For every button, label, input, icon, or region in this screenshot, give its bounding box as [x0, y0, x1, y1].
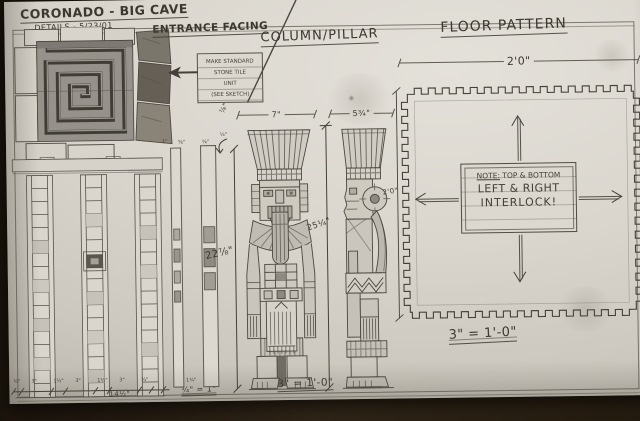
strip-dim-label: ⅝": [178, 139, 185, 145]
strip-dim-label: 1": [162, 139, 168, 145]
floor-note-line2: LEFT & RIGHT: [462, 181, 576, 197]
dim-label: 7": [272, 110, 282, 119]
pillar-side-drawing: [332, 123, 398, 392]
wall-dim-label: 3": [75, 378, 81, 384]
pillar-front-width-dim: 7": [238, 110, 316, 120]
wall-dim-label: 1½": [53, 378, 63, 384]
floor-note-prefix: NOTE:: [477, 171, 500, 180]
dim-label: 5¾": [353, 109, 371, 119]
photo-of-sketch: { "title_block": { "project": "CORONADO …: [0, 0, 640, 421]
pillar-scale-note: 3" = 1'-0": [277, 376, 333, 392]
floor-note-line3: INTERLOCK!: [462, 195, 576, 211]
floor-scale-note: 3" = 1'-0": [448, 325, 517, 345]
entrance-stone-drawing: [8, 26, 174, 162]
strip-dim-label: ⅝": [202, 139, 209, 145]
wall-dim-label: 1½": [97, 378, 107, 384]
wall-total-dim: 14½": [109, 390, 130, 399]
pillar-front-drawing: [240, 124, 322, 393]
pillar-side-width-dim: 5¾": [330, 109, 394, 119]
paper-speck: [348, 95, 354, 101]
wall-dim-label: 3": [119, 377, 125, 383]
slash-stroke: [240, 0, 305, 105]
sketch-paper: CORONADO - BIG CAVE DETAILS - 5/23/01 SH…: [4, 0, 640, 404]
wall-dim-label: 3": [31, 379, 37, 385]
wall-dim-label: ¾": [141, 377, 148, 383]
floor-note-line1: TOP & BOTTOM: [502, 170, 560, 180]
trim-strip-wide: [200, 145, 219, 387]
floor-note-box: NOTE: TOP & BOTTOM LEFT & RIGHT INTERLOC…: [460, 162, 577, 234]
dim-label: 2'0": [507, 54, 531, 68]
arrow-left-icon: [165, 63, 199, 81]
wall-dim-label: ¾": [13, 379, 20, 385]
entrance-wall-elevation: [10, 154, 167, 402]
